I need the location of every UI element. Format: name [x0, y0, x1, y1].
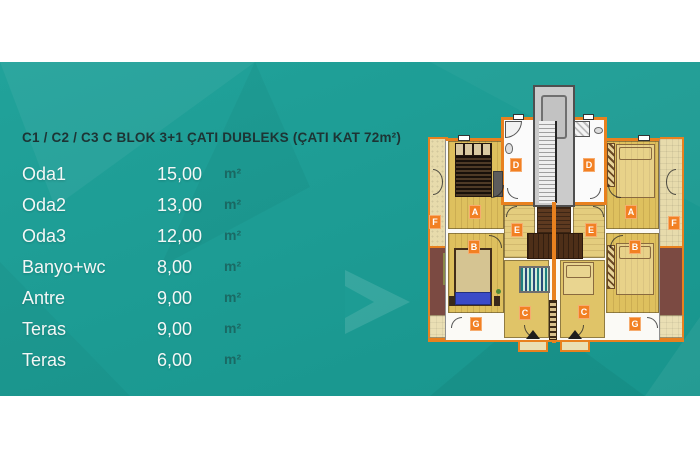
ladder-strip [549, 300, 557, 340]
area-unit: m² [224, 165, 241, 181]
top-white-band [0, 0, 700, 62]
area-unit: m² [224, 351, 241, 367]
exit-step-right [560, 342, 590, 352]
door-swing-mark [568, 330, 582, 339]
room-name: Oda1 [22, 164, 66, 185]
side-roof-right [660, 248, 684, 315]
room-name: Teras [22, 350, 66, 371]
wardrobe-b-right [607, 245, 615, 289]
window [638, 135, 650, 141]
room-label-c-right: C [578, 305, 590, 319]
room-label-e-left: E [511, 223, 523, 237]
bed-room-c-left [519, 266, 550, 293]
area-unit: m² [224, 289, 241, 305]
room-label-b-right: B [629, 240, 641, 254]
room-label-f-left: F [429, 215, 441, 229]
area-unit: m² [224, 320, 241, 336]
sink-right-bath [594, 127, 603, 134]
bed-room-a-right [616, 144, 655, 198]
room-label-b-left: B [468, 240, 480, 254]
room-area: 9,00 [157, 319, 192, 340]
room-name: Antre [22, 288, 65, 309]
table-row: Oda2 13,00 m² [0, 191, 420, 222]
floor-plan: D D A A E E B B C C F F G G [425, 85, 687, 355]
toilet-left-bath [505, 143, 513, 154]
room-area: 8,00 [157, 257, 192, 278]
room-name: Banyo+wc [22, 257, 106, 278]
room-label-a-right: A [625, 205, 637, 219]
shaft-stairs [539, 121, 557, 203]
room-label-a-left: A [469, 205, 481, 219]
exit-step-left [518, 342, 548, 352]
room-label-g-right: G [629, 317, 641, 331]
bed-room-a-left [455, 143, 492, 197]
room-name: Oda2 [22, 195, 66, 216]
wardrobe-a-right [607, 143, 615, 187]
room-label-c-left: C [519, 306, 531, 320]
room-area: 15,00 [157, 164, 202, 185]
room-label-f-right: F [668, 216, 680, 230]
shower-right-bath [574, 121, 590, 137]
table-row: Teras 9,00 m² [0, 315, 420, 346]
table-row: Oda1 15,00 m² [0, 160, 420, 191]
room-label-e-right: E [585, 223, 597, 237]
area-unit: m² [224, 227, 241, 243]
room-area: 13,00 [157, 195, 202, 216]
plant [496, 289, 501, 294]
room-area: 6,00 [157, 350, 192, 371]
room-label-d-left: D [510, 158, 522, 172]
room-area: 12,00 [157, 226, 202, 247]
table-row: Banyo+wc 8,00 m² [0, 253, 420, 284]
bed-room-b-left [454, 248, 492, 306]
table-row: Oda3 12,00 m² [0, 222, 420, 253]
bed-room-c-right [563, 262, 594, 295]
area-table: Oda1 15,00 m² Oda2 13,00 m² Oda3 12,00 m… [0, 160, 420, 377]
bottom-white-band [0, 396, 700, 466]
window [513, 114, 524, 120]
plan-title: C1 / C2 / C3 C BLOK 3+1 ÇATI DUBLEKS (ÇA… [22, 130, 412, 145]
door-swing-mark [526, 330, 540, 339]
area-unit: m² [224, 258, 241, 274]
room-area: 9,00 [157, 288, 192, 309]
room-name: Teras [22, 319, 66, 340]
table-row: Antre 9,00 m² [0, 284, 420, 315]
room-name: Oda3 [22, 226, 66, 247]
window [583, 114, 594, 120]
nightstand [449, 296, 455, 306]
table-row: Teras 6,00 m² [0, 346, 420, 377]
area-unit: m² [224, 196, 241, 212]
nightstand [494, 296, 500, 306]
window [458, 135, 470, 141]
page: C1 / C2 / C3 C BLOK 3+1 ÇATI DUBLEKS (ÇA… [0, 0, 700, 466]
room-label-d-right: D [583, 158, 595, 172]
elevator-shaft [533, 85, 575, 207]
room-label-g-left: G [470, 317, 482, 331]
